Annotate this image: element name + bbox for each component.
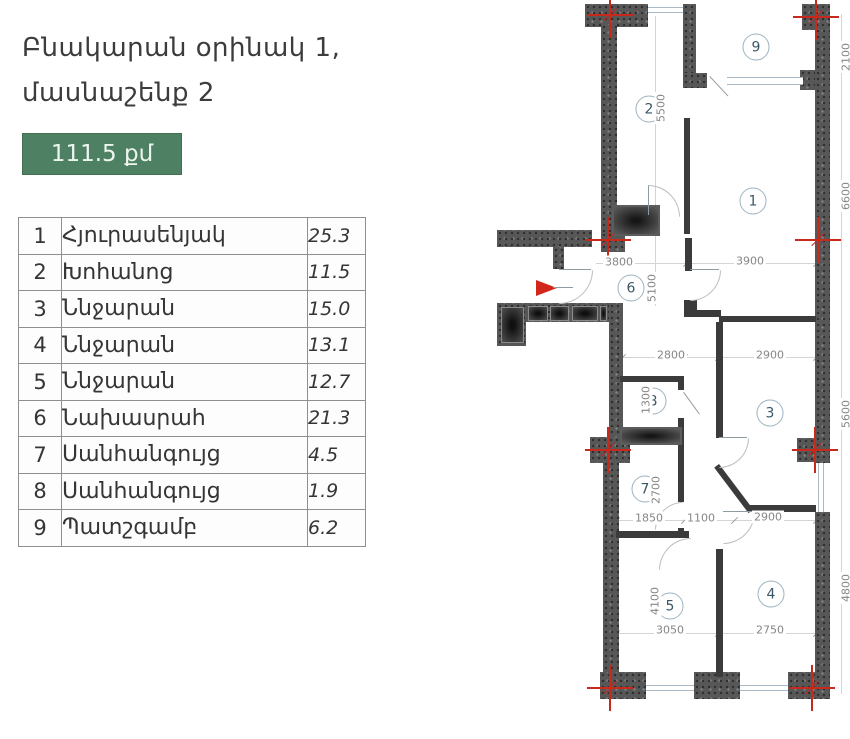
window [740, 685, 788, 691]
wall-segment [600, 672, 646, 699]
wall-segment [601, 24, 617, 234]
room-number-label: 6 [618, 275, 645, 302]
column-block [797, 438, 815, 462]
elevator-cell [528, 306, 548, 321]
dimension-label: 3900 [734, 255, 766, 268]
elevator-cell [600, 306, 607, 321]
wall-segment [815, 4, 830, 463]
room-number-label: 4 [758, 581, 785, 608]
dimension-label: 3800 [603, 256, 635, 269]
partition-wall [620, 376, 680, 382]
elevator-cell [572, 306, 598, 321]
chamfer-wall [714, 464, 753, 513]
floor-plan: 9 2 1 6 3 8 7 5 4 5500 3800 3900 5100 28… [0, 0, 850, 739]
dimension-label: 5600 [840, 398, 850, 430]
window [646, 685, 694, 691]
wall-segment [609, 303, 623, 437]
door-leaf [709, 76, 728, 96]
dimension-label: 1100 [685, 512, 717, 525]
dimension-label: 5500 [655, 92, 668, 124]
dimension-label: 2900 [754, 349, 786, 362]
partition-wall [684, 310, 721, 317]
dimension-label: 1850 [633, 512, 665, 525]
dimension-label: 3050 [654, 624, 686, 637]
wall-segment [802, 4, 830, 30]
dimension-label: 2750 [754, 624, 786, 637]
elevator-cell [550, 306, 569, 321]
partition-wall [678, 376, 684, 390]
partition-wall [684, 118, 690, 234]
door-arc [723, 512, 755, 544]
entrance-arrow-icon [536, 280, 557, 296]
room-number-label: 1 [740, 188, 767, 215]
vent-shaft [620, 427, 682, 445]
door-arc [648, 185, 680, 217]
dimension-label: 2100 [840, 41, 850, 73]
wall-segment [497, 230, 592, 247]
wall-segment [815, 512, 830, 698]
partition-wall [685, 238, 692, 271]
dimension-label: 4800 [840, 572, 850, 604]
door-arc [719, 438, 749, 468]
dimension-label: 1300 [640, 384, 653, 416]
room-number-label: 9 [743, 34, 770, 61]
wall-segment [683, 73, 707, 88]
window [818, 463, 824, 512]
entrance-arrow-line [553, 287, 573, 288]
room-number-label: 3 [757, 400, 784, 427]
wall-segment [683, 4, 696, 77]
window [727, 77, 803, 85]
dimension-label: 2700 [650, 474, 663, 506]
dimension-label: 2900 [752, 511, 784, 524]
elevator-cell [501, 307, 524, 343]
door-leaf [683, 392, 700, 414]
dimension-label: 5100 [646, 272, 659, 304]
door-arc [659, 538, 691, 570]
dimension-label: 6600 [840, 180, 850, 212]
dimension-label: 2800 [655, 349, 687, 362]
partition-wall [716, 549, 723, 677]
window [648, 7, 683, 13]
partition-wall [716, 322, 723, 438]
door-arc [690, 270, 721, 301]
wall-segment [603, 461, 619, 675]
wall-segment [553, 247, 564, 269]
dimension-label: 4100 [649, 585, 662, 617]
partition-wall [719, 316, 816, 322]
